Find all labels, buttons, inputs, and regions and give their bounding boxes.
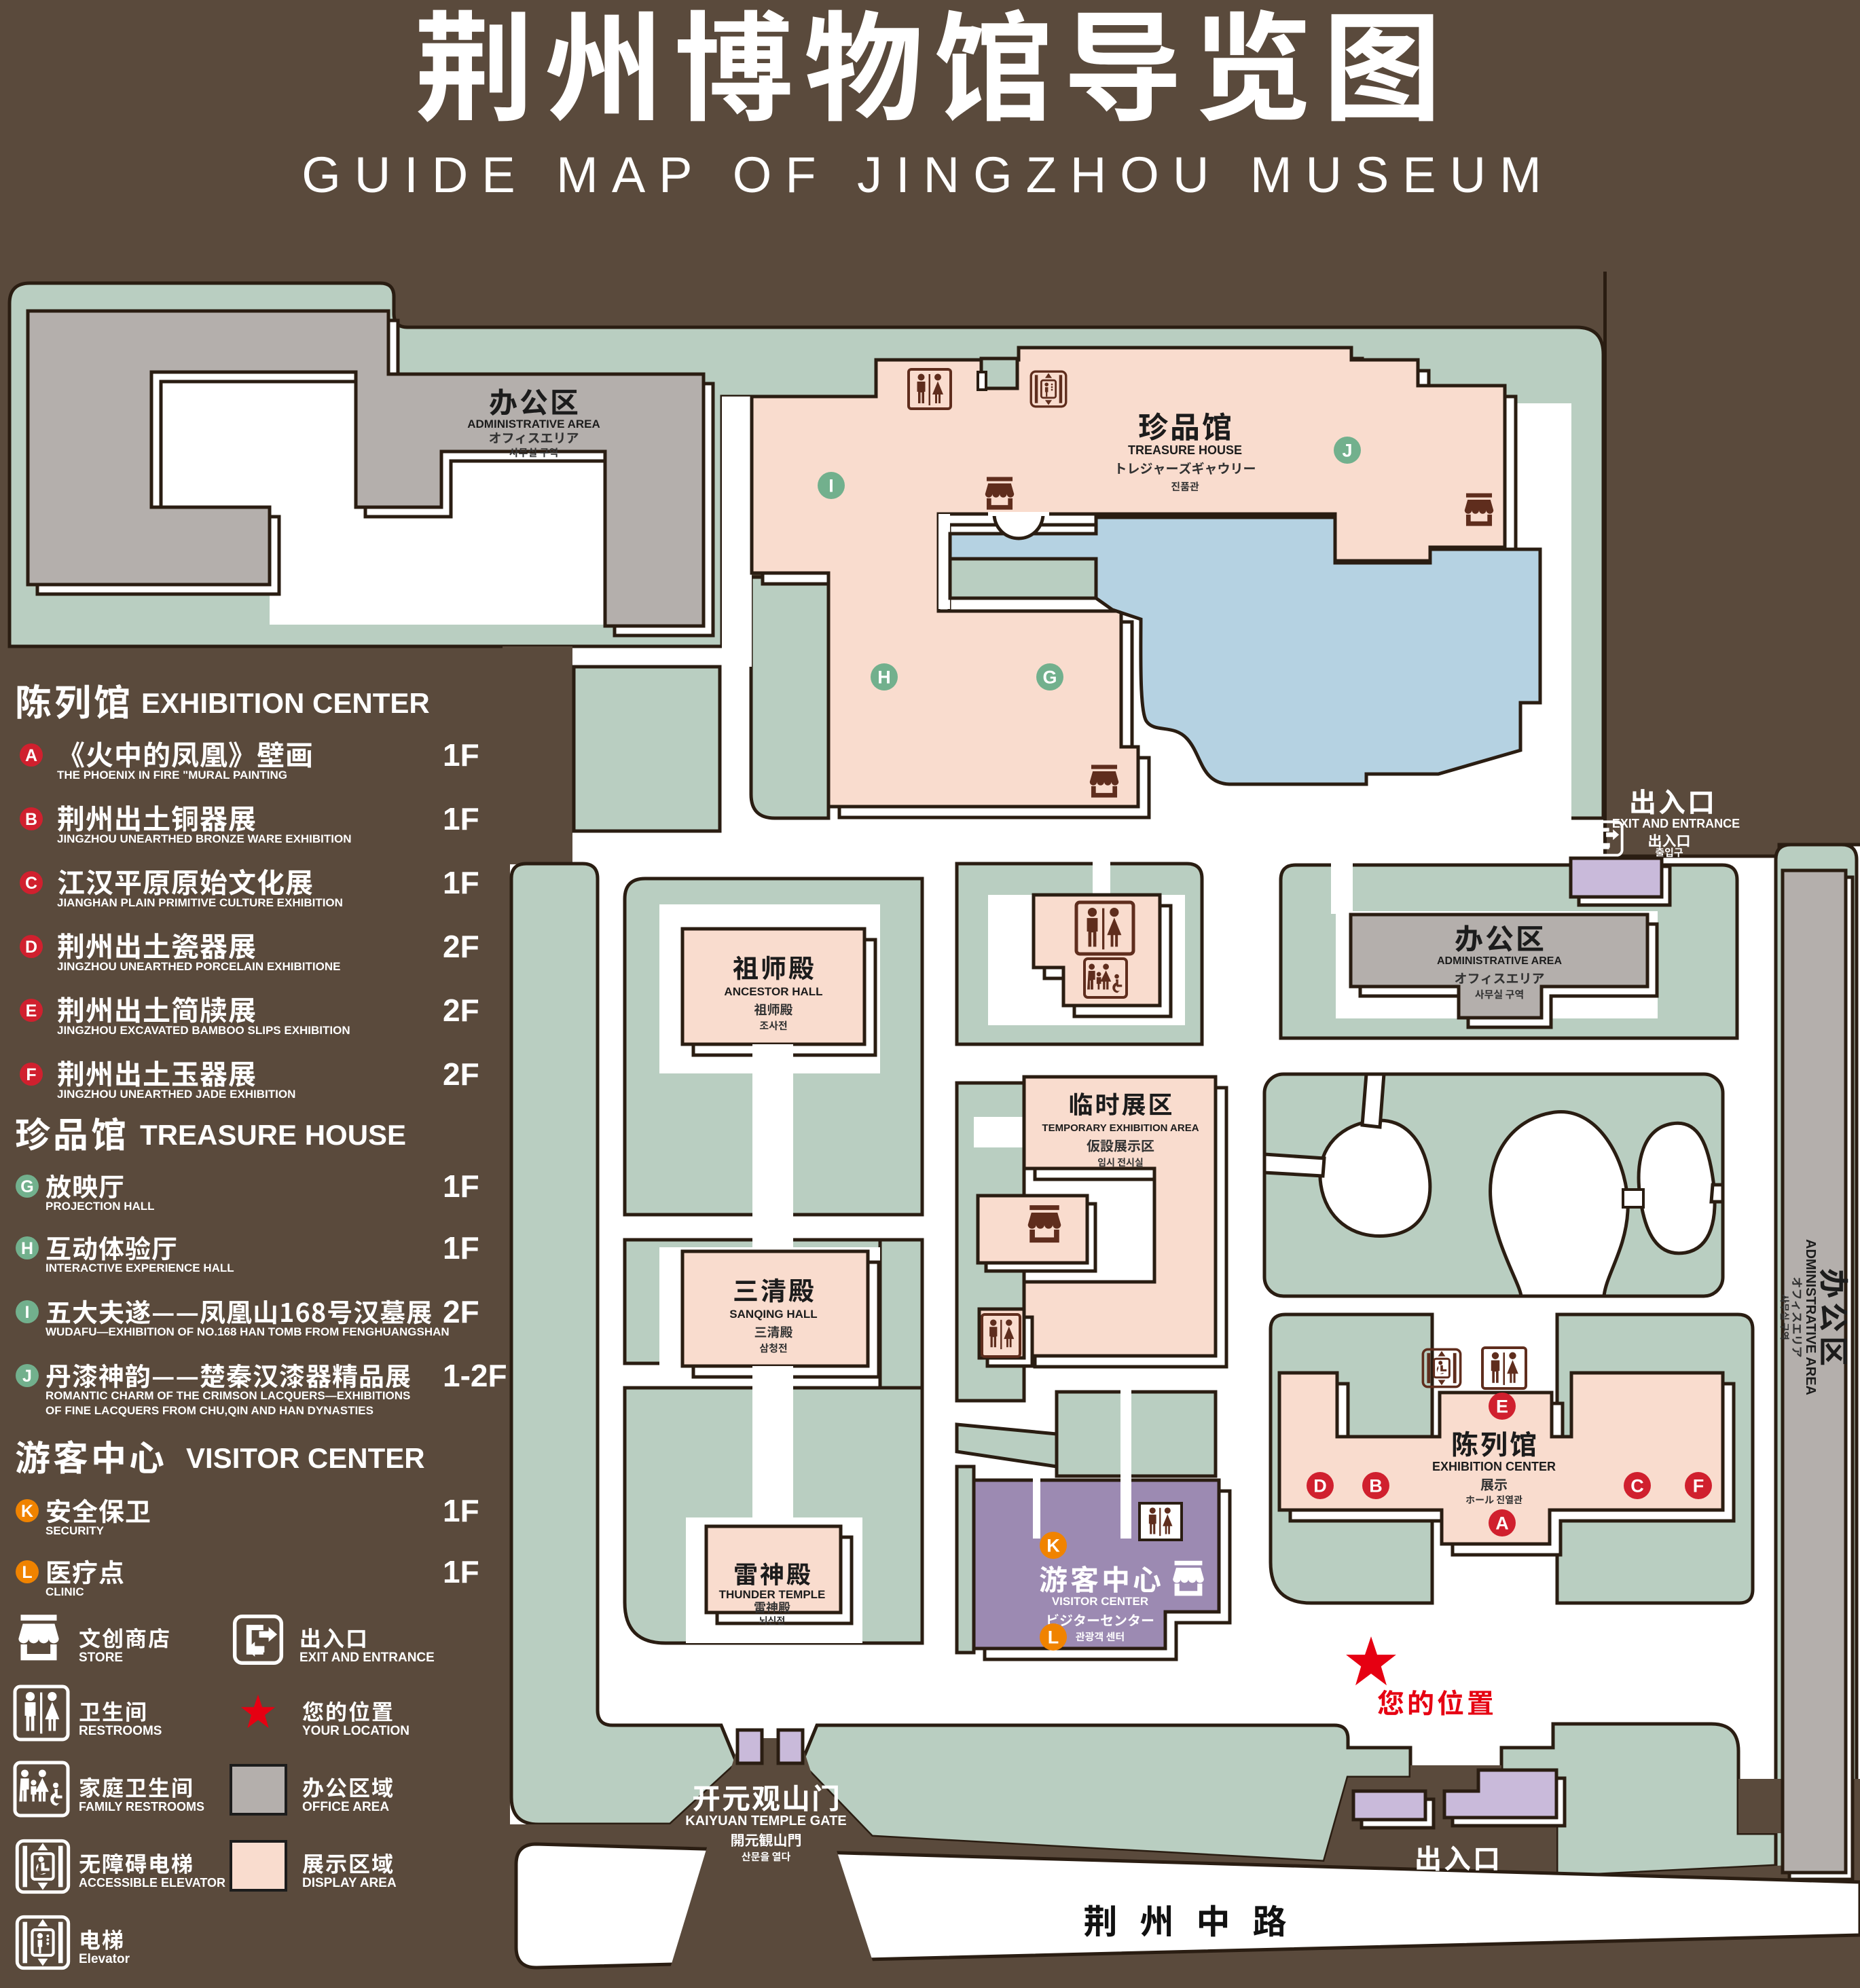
svg-text:I: I: [828, 476, 834, 496]
svg-text:1F: 1F: [443, 801, 479, 836]
svg-text:JINGZHOU UNEARTHED BRONZE WARE: JINGZHOU UNEARTHED BRONZE WARE EXHIBITIO…: [57, 832, 352, 845]
svg-text:G: G: [1042, 667, 1057, 688]
svg-text:2F: 2F: [443, 929, 479, 964]
svg-text:2F: 2F: [443, 1056, 479, 1092]
svg-text:Elevator: Elevator: [79, 1952, 130, 1966]
svg-text:THE PHOENIX IN FIRE "MURAL PAI: THE PHOENIX IN FIRE "MURAL PAINTING: [57, 769, 287, 781]
svg-text:EXIT AND ENTRANCE: EXIT AND ENTRANCE: [299, 1651, 435, 1665]
svg-text:K: K: [21, 1502, 33, 1521]
svg-text:JINGZHOU UNEARTHED JADE EXHIBI: JINGZHOU UNEARTHED JADE EXHIBITION: [57, 1088, 295, 1101]
svg-text:GUIDE MAP OF JINGZHOU MUSEUM: GUIDE MAP OF JINGZHOU MUSEUM: [302, 147, 1554, 203]
svg-text:2F: 2F: [443, 993, 479, 1028]
svg-text:JINGZHOU EXCAVATED BAMBOO SLIP: JINGZHOU EXCAVATED BAMBOO SLIPS EXHIBITI…: [57, 1024, 350, 1037]
svg-text:OF FINE LACQUERS FROM CHU,QIN: OF FINE LACQUERS FROM CHU,QIN AND HAN DY…: [45, 1404, 373, 1417]
svg-text:JINGZHOU UNEARTHED PORCELAIN E: JINGZHOU UNEARTHED PORCELAIN EXHIBITIONE: [57, 960, 340, 973]
svg-text:WUDAFU—EXHIBITION OF NO.168 HA: WUDAFU—EXHIBITION OF NO.168 HAN TOMB FRO…: [45, 1325, 450, 1338]
svg-text:YOUR LOCATION: YOUR LOCATION: [302, 1724, 409, 1738]
svg-text:CLINIC: CLINIC: [45, 1585, 84, 1598]
svg-text:B: B: [25, 810, 37, 829]
svg-text:E: E: [26, 1001, 37, 1020]
svg-text:THUNDER TEMPLE: THUNDER TEMPLE: [719, 1588, 826, 1601]
svg-text:H: H: [877, 667, 891, 688]
svg-text:1F: 1F: [443, 1554, 479, 1589]
svg-text:PROJECTION HALL: PROJECTION HALL: [45, 1200, 155, 1213]
svg-text:VISITOR CENTER: VISITOR CENTER: [1052, 1595, 1148, 1608]
svg-text:TREASURE HOUSE: TREASURE HOUSE: [1128, 443, 1242, 457]
svg-text:L: L: [22, 1563, 32, 1582]
svg-text:G: G: [20, 1177, 33, 1196]
svg-text:ADMINISTRATIVE AREA: ADMINISTRATIVE AREA: [1803, 1239, 1818, 1395]
svg-text:DISPLAY AREA: DISPLAY AREA: [302, 1876, 397, 1890]
svg-text:C: C: [1630, 1476, 1644, 1496]
svg-text:1F: 1F: [443, 1230, 479, 1266]
svg-text:RESTROOMS: RESTROOMS: [79, 1724, 162, 1738]
svg-text:1F: 1F: [443, 1493, 479, 1528]
svg-text:J: J: [1342, 441, 1352, 461]
svg-text:1F: 1F: [443, 1168, 479, 1204]
svg-text:L: L: [1048, 1627, 1059, 1648]
svg-text:ADMINISTRATIVE AREA: ADMINISTRATIVE AREA: [1437, 955, 1562, 967]
svg-text:ANCESTOR HALL: ANCESTOR HALL: [724, 985, 822, 998]
svg-text:1F: 1F: [443, 865, 479, 900]
svg-text:JIANGHAN PLAIN PRIMITIVE CULTU: JIANGHAN PLAIN PRIMITIVE CULTURE EXHIBIT…: [57, 896, 343, 909]
svg-text:VISITOR CENTER: VISITOR CENTER: [186, 1442, 425, 1474]
svg-text:TREASURE HOUSE: TREASURE HOUSE: [140, 1119, 406, 1151]
svg-text:F: F: [1693, 1476, 1704, 1496]
svg-text:D: D: [1313, 1476, 1327, 1496]
svg-text:EXIT AND ENTRANCE: EXIT AND ENTRANCE: [1393, 1873, 1521, 1886]
svg-text:INTERACTIVE EXPERIENCE HALL: INTERACTIVE EXPERIENCE HALL: [45, 1262, 234, 1274]
svg-text:D: D: [25, 938, 37, 957]
svg-text:A: A: [1495, 1513, 1509, 1534]
svg-text:EXHIBITION CENTER: EXHIBITION CENTER: [1432, 1460, 1556, 1473]
svg-text:SANQING HALL: SANQING HALL: [729, 1308, 817, 1321]
svg-text:TEMPORARY EXHIBITION AREA: TEMPORARY EXHIBITION AREA: [1042, 1122, 1199, 1134]
svg-text:ADMINISTRATIVE AREA: ADMINISTRATIVE AREA: [467, 418, 600, 430]
svg-text:KAIYUAN TEMPLE GATE: KAIYUAN TEMPLE GATE: [685, 1814, 846, 1828]
svg-text:H: H: [21, 1239, 33, 1258]
svg-text:SECURITY: SECURITY: [45, 1524, 105, 1537]
svg-text:I: I: [25, 1303, 30, 1322]
svg-text:STORE: STORE: [79, 1651, 123, 1665]
svg-text:FAMILY RESTROOMS: FAMILY RESTROOMS: [79, 1800, 204, 1814]
svg-text:1F: 1F: [443, 737, 479, 773]
svg-text:2F: 2F: [443, 1294, 479, 1329]
svg-text:ACCESSIBLE ELEVATOR: ACCESSIBLE ELEVATOR: [79, 1876, 225, 1890]
svg-text:J: J: [22, 1367, 32, 1386]
svg-text:E: E: [1496, 1397, 1508, 1417]
svg-text:K: K: [1046, 1536, 1060, 1556]
svg-text:B: B: [1369, 1476, 1383, 1496]
svg-text:C: C: [25, 874, 37, 893]
svg-text:1-2F: 1-2F: [443, 1358, 507, 1393]
svg-text:A: A: [25, 746, 37, 765]
svg-text:ROMANTIC CHARM OF THE CRIMSON: ROMANTIC CHARM OF THE CRIMSON LACQUERS—E…: [45, 1389, 410, 1402]
svg-text:F: F: [26, 1065, 36, 1084]
svg-text:EXHIBITION CENTER: EXHIBITION CENTER: [141, 687, 430, 719]
svg-text:OFFICE AREA: OFFICE AREA: [302, 1800, 389, 1814]
svg-text:EXIT AND ENTRANCE: EXIT AND ENTRANCE: [1612, 817, 1740, 830]
